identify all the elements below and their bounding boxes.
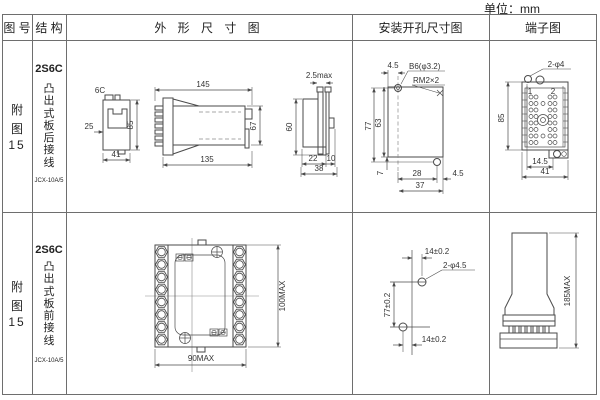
col-divider-3: [352, 14, 353, 395]
dim-4-5-top: 4.5: [387, 61, 399, 70]
outline-drawing-row2: 100MAX 90MAX: [67, 213, 351, 394]
dim-85: 85: [126, 120, 135, 129]
socket-flange: [503, 315, 555, 321]
header-outline: 外 形 尺 寸 图: [66, 19, 352, 36]
fig-no-row2-char2: 图: [7, 297, 27, 314]
dim-90max: 90MAX: [188, 354, 215, 363]
terminal-holes-label: 2-φ4: [548, 60, 565, 69]
header-fig-no: 图 号: [2, 19, 32, 36]
header-mounting: 安装开孔尺寸图: [352, 19, 489, 36]
terminal-drawing-row1: 2-φ4 1 2: [491, 42, 598, 210]
side-view: 145 135 67: [155, 80, 263, 168]
fig-no-row2-number: 15: [7, 315, 27, 329]
col-divider-4: [489, 14, 490, 395]
dim-77: 77: [364, 121, 373, 130]
structure-desc-row1: 凸出式板后接线: [42, 83, 56, 169]
mounting-screw-top: [212, 247, 223, 258]
mounting-screw-bottom: [180, 333, 191, 344]
dim-14-top: 14±0.2: [425, 247, 450, 256]
type-code-row1: JCX-10A/5: [33, 178, 65, 184]
dim-22: 22: [309, 154, 318, 163]
table-border-left: [2, 14, 3, 395]
top-view: 6C 25 85 41: [85, 86, 140, 163]
terminal-drawing-row2: 185MAX: [491, 213, 598, 394]
dim-60: 60: [285, 122, 294, 131]
header-terminal: 端子图: [489, 19, 597, 36]
table-border-bottom: [2, 394, 597, 395]
model-row1: 2S6C: [34, 63, 64, 75]
model-row2: 2S6C: [34, 244, 64, 256]
drawing-sheet: 单位：mm 图 号 结 构 外 形 尺 寸 图 安装开孔尺寸图 端子图 附 图 …: [0, 0, 600, 400]
type-code-row2: JCX-10A/5: [33, 358, 65, 364]
mounting-drawing-row2: 14±0.2 2-φ4.5 77±0.2 14±0.2: [354, 213, 487, 394]
dim-14-bottom: 14±0.2: [422, 335, 447, 344]
holes-spec-label: 2-φ4.5: [443, 261, 467, 270]
dim-63: 63: [374, 118, 383, 127]
outline-drawing-row1: 6C 25 85 41: [67, 41, 351, 211]
hole-spec-label: B6(φ3.2): [409, 62, 441, 71]
dim-25: 25: [85, 122, 94, 131]
dim-14-5: 14.5: [532, 157, 548, 166]
front-panel: [303, 99, 318, 147]
col-divider-1: [32, 14, 33, 395]
fig-no-row1-char2: 图: [7, 120, 27, 137]
nameplate: [175, 255, 225, 335]
mounting-hole-bottom: [434, 159, 441, 166]
mounting-plate-outline: [388, 87, 443, 157]
dim-85-terminal: 85: [497, 113, 506, 122]
fig-no-row1-char1: 附: [7, 101, 27, 118]
terminal-number-1: 1: [528, 87, 533, 96]
thread-spec-label: RM2×2: [413, 76, 440, 85]
mounting-drawing-row1: 4.5 B6(φ3.2) RM2×2 77 63 7 28 4.5 37: [354, 42, 487, 210]
dim-67: 67: [249, 121, 258, 130]
dim-37: 37: [416, 181, 425, 190]
socket-teeth: [509, 326, 549, 333]
side-view-bezel: [163, 98, 173, 155]
dim-2-5max: 2.5max: [306, 71, 332, 80]
relay-body-side: [505, 233, 554, 315]
dim-28: 28: [413, 169, 422, 178]
dim-4-5-bottom-right: 4.5: [452, 169, 464, 178]
dim-100max: 100MAX: [278, 280, 287, 311]
structure-desc-row2: 凸出式板前接线: [42, 261, 56, 347]
dim-135: 135: [200, 155, 214, 164]
table-border-top: [2, 14, 597, 15]
dim-77-02: 77±0.2: [383, 292, 392, 317]
fig-no-row2-char1: 附: [7, 278, 27, 295]
socket-base: [500, 333, 557, 348]
header-structure: 结 构: [32, 19, 66, 36]
dim-41-terminal: 41: [541, 167, 550, 176]
dim-145: 145: [196, 80, 210, 89]
front-profile-view: 2.5max 60 22 10 38: [285, 71, 337, 177]
dim-6c: 6C: [95, 86, 105, 95]
dim-185max: 185MAX: [563, 275, 572, 306]
terminal-ear-hole-bottom: [554, 151, 561, 158]
dim-10: 10: [327, 154, 336, 163]
dim-7: 7: [376, 170, 385, 175]
terminal-ear-hole-top: [525, 76, 532, 83]
fig-no-row1-number: 15: [7, 138, 27, 152]
terminal-contacts: [529, 95, 557, 145]
dim-38: 38: [315, 164, 324, 173]
terminal-number-2: 2: [551, 87, 556, 96]
dim-41: 41: [112, 150, 121, 159]
